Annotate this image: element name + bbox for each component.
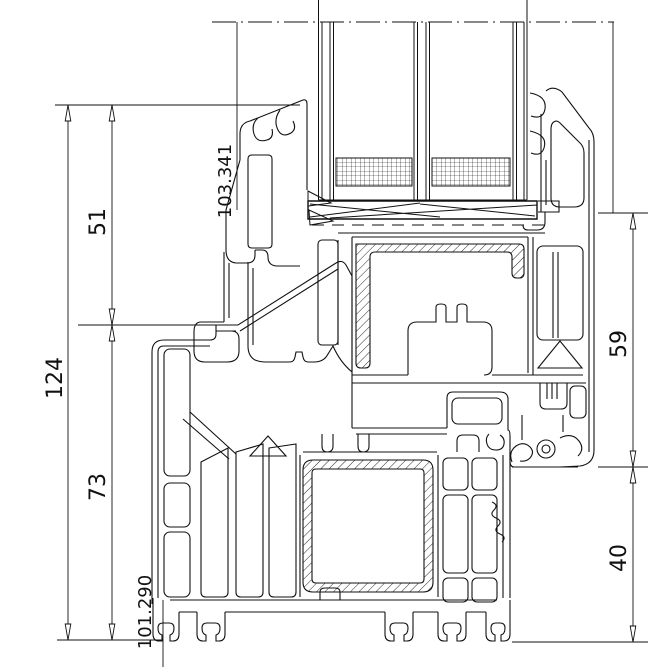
gasket-fin-lower [530, 131, 545, 154]
frame-chamber-r6 [472, 578, 497, 602]
interlock-curl-right [560, 436, 582, 456]
frame-top-wall [352, 428, 447, 434]
frame-column-2 [236, 444, 263, 597]
profile-section-drawing: 124 51 73 59 40 103.341 101.290 [0, 0, 667, 667]
coord-label-top: 103.341 [215, 144, 236, 218]
frame-outer-contour [152, 261, 352, 604]
dim-label-40: 40 [607, 544, 632, 572]
screw-channel-serration [492, 502, 504, 542]
frame-chamber-r4 [472, 458, 497, 490]
frame-foot-5 [486, 612, 510, 641]
screw-boss-comb [540, 383, 567, 409]
cad-canvas: 124 51 73 59 40 103.341 101.290 [0, 0, 667, 667]
frame-column-1 [201, 448, 228, 597]
frame-top-hooks [322, 434, 369, 452]
sash-chamber-small [318, 240, 338, 345]
sash-chamber-divider [553, 252, 558, 338]
sash-chamber-lower-right [570, 386, 586, 418]
frame-steel-chamber-walls [300, 452, 438, 597]
steel-reinforcement-sash [356, 244, 524, 368]
sash-chamber-side-walls [352, 237, 533, 375]
gasket-fin-upper [530, 93, 545, 117]
frame-foot-3 [385, 612, 413, 641]
frame-seal-lip [486, 434, 504, 450]
steel-reinforcement-frame [303, 460, 433, 592]
sash-chamber-right [537, 246, 583, 340]
frame-rebate-upstand [457, 435, 479, 452]
glass-pane-1 [319, 22, 334, 200]
sash-glass-side-wall [541, 114, 546, 212]
bead-clip-curl-2 [276, 110, 295, 135]
glazing-unit [308, 0, 548, 225]
frame-chamber-r3 [443, 578, 468, 602]
dim-label-124: 124 [43, 357, 68, 399]
dim-label-73: 73 [86, 473, 111, 501]
frame-foot-2 [197, 612, 225, 641]
sash-left-wall [224, 252, 229, 322]
setting-block [308, 201, 537, 219]
sash-underside [248, 262, 352, 372]
bead-foot-hook [255, 250, 300, 266]
frame-chamber-a [164, 349, 190, 476]
frame-column-3 [269, 444, 296, 597]
interlock-walls [512, 415, 578, 467]
bead-clip-curl-1 [253, 118, 272, 141]
gasket-bulb-inner [542, 445, 550, 453]
glazing-bead [226, 100, 307, 266]
dim-label-59: 59 [607, 330, 632, 358]
frame-chamber-b [164, 483, 190, 527]
frame-chamber-c [164, 532, 190, 597]
hardware-groove [408, 304, 492, 375]
interlock-curl-left [511, 444, 533, 462]
sash-right-hollow [551, 121, 584, 207]
coord-label-bottom: 101.290 [135, 575, 156, 649]
glass-pane-3 [513, 22, 527, 200]
frame-profile [152, 261, 510, 641]
sash-profile [194, 88, 594, 467]
frame-chamber-upper-right [452, 398, 502, 424]
sash-bottom-wall [352, 375, 586, 383]
bead-hollow-chamber [248, 155, 272, 248]
frame-chamber-r5 [472, 495, 497, 573]
glass-pane-2 [414, 22, 430, 200]
dim-label-51: 51 [86, 208, 111, 236]
frame-foot-4 [438, 612, 466, 641]
frame-chamber-r2 [443, 495, 468, 573]
frame-foot-1 [153, 612, 179, 641]
bead-outer-contour [240, 100, 307, 190]
spacer-bar-right [432, 158, 510, 186]
sash-chamber-top [338, 233, 545, 237]
glazing-gasket-left [308, 191, 333, 225]
gasket-bulb-outer [537, 440, 555, 458]
spacer-bar-left [336, 158, 412, 186]
frame-chamber-r1 [443, 458, 468, 490]
weld-mark-sash [538, 341, 582, 368]
